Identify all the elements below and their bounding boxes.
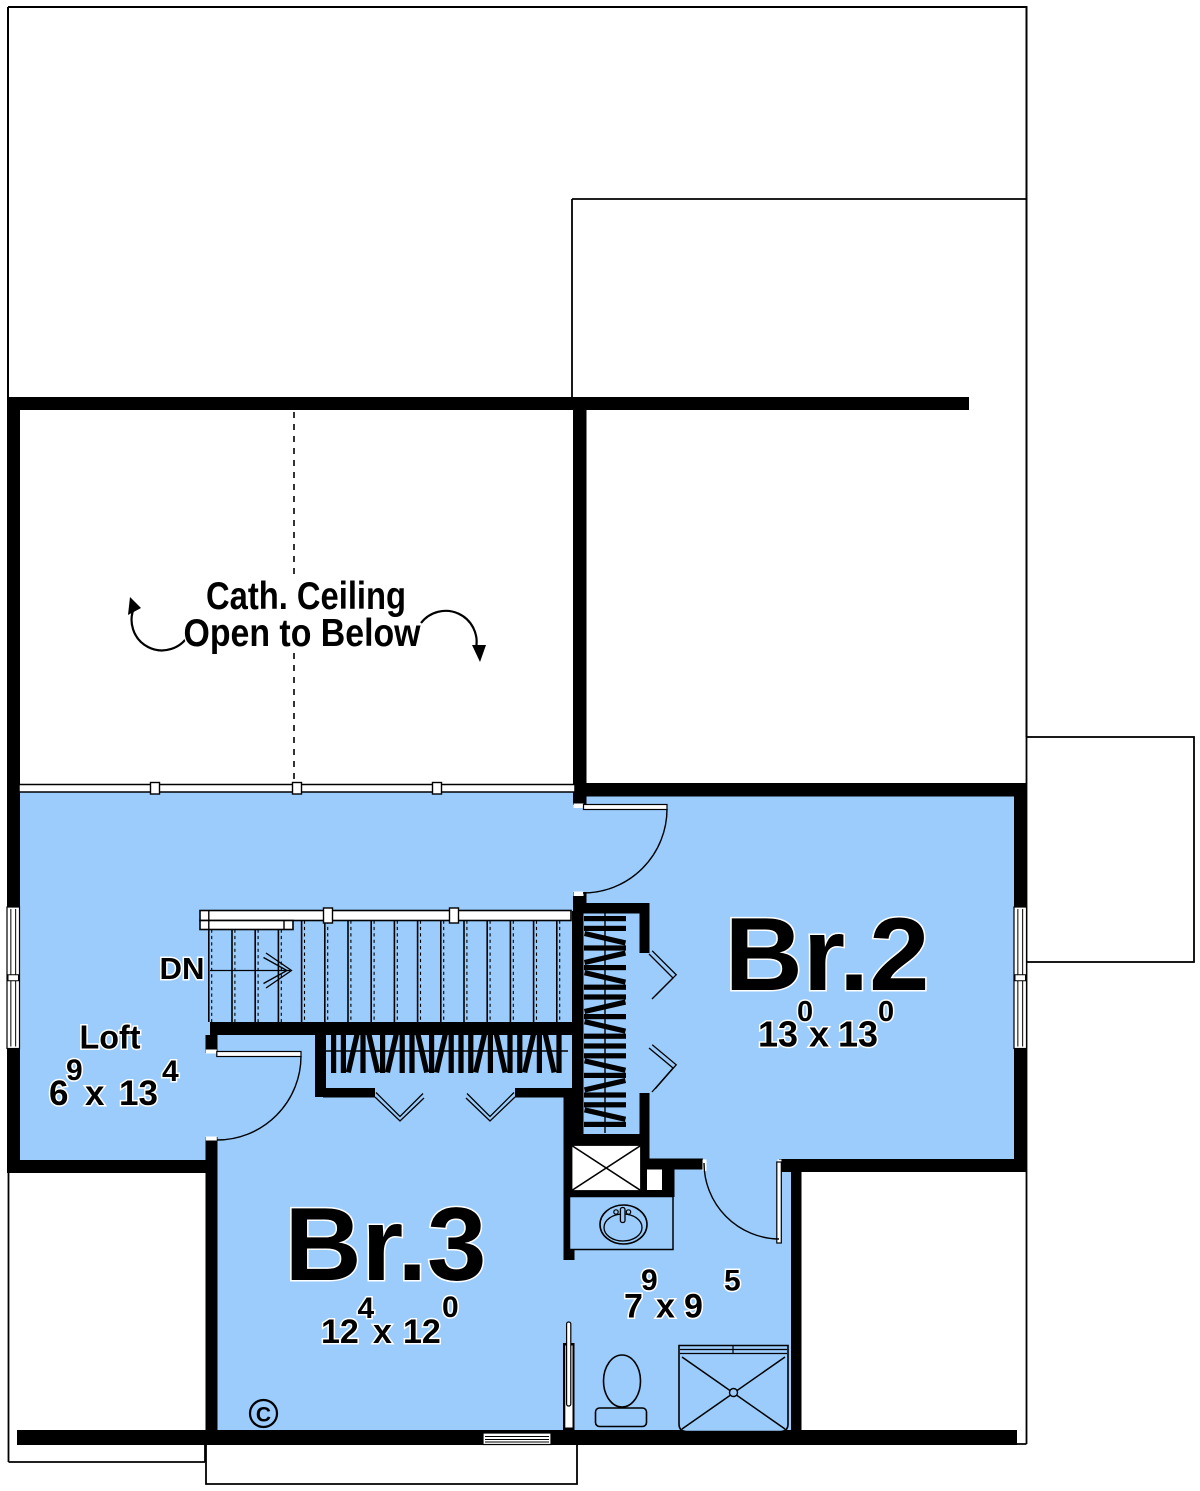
svg-text:x: x [809,1014,829,1055]
svg-text:Loft: Loft [80,1019,141,1056]
svg-text:5: 5 [724,1265,741,1298]
svg-text:x: x [656,1288,675,1326]
svg-text:13: 13 [838,1014,878,1055]
svg-text:0: 0 [442,1291,459,1324]
svg-text:x: x [373,1313,392,1351]
svg-text:13: 13 [758,1014,798,1055]
svg-text:Br.3: Br.3 [285,1187,487,1303]
svg-text:9: 9 [66,1054,83,1087]
svg-text:Br.2: Br.2 [725,897,930,1013]
svg-text:12: 12 [321,1313,359,1351]
svg-text:13: 13 [119,1074,158,1113]
svg-text:0: 0 [878,996,894,1028]
svg-text:DN: DN [160,951,205,986]
svg-text:4: 4 [162,1055,179,1088]
svg-text:12: 12 [403,1313,441,1351]
svg-text:9: 9 [684,1288,703,1326]
svg-text:4: 4 [358,1292,375,1325]
svg-text:Open to Below: Open to Below [184,612,422,655]
svg-text:C: C [256,1404,271,1427]
svg-text:x: x [85,1074,105,1113]
